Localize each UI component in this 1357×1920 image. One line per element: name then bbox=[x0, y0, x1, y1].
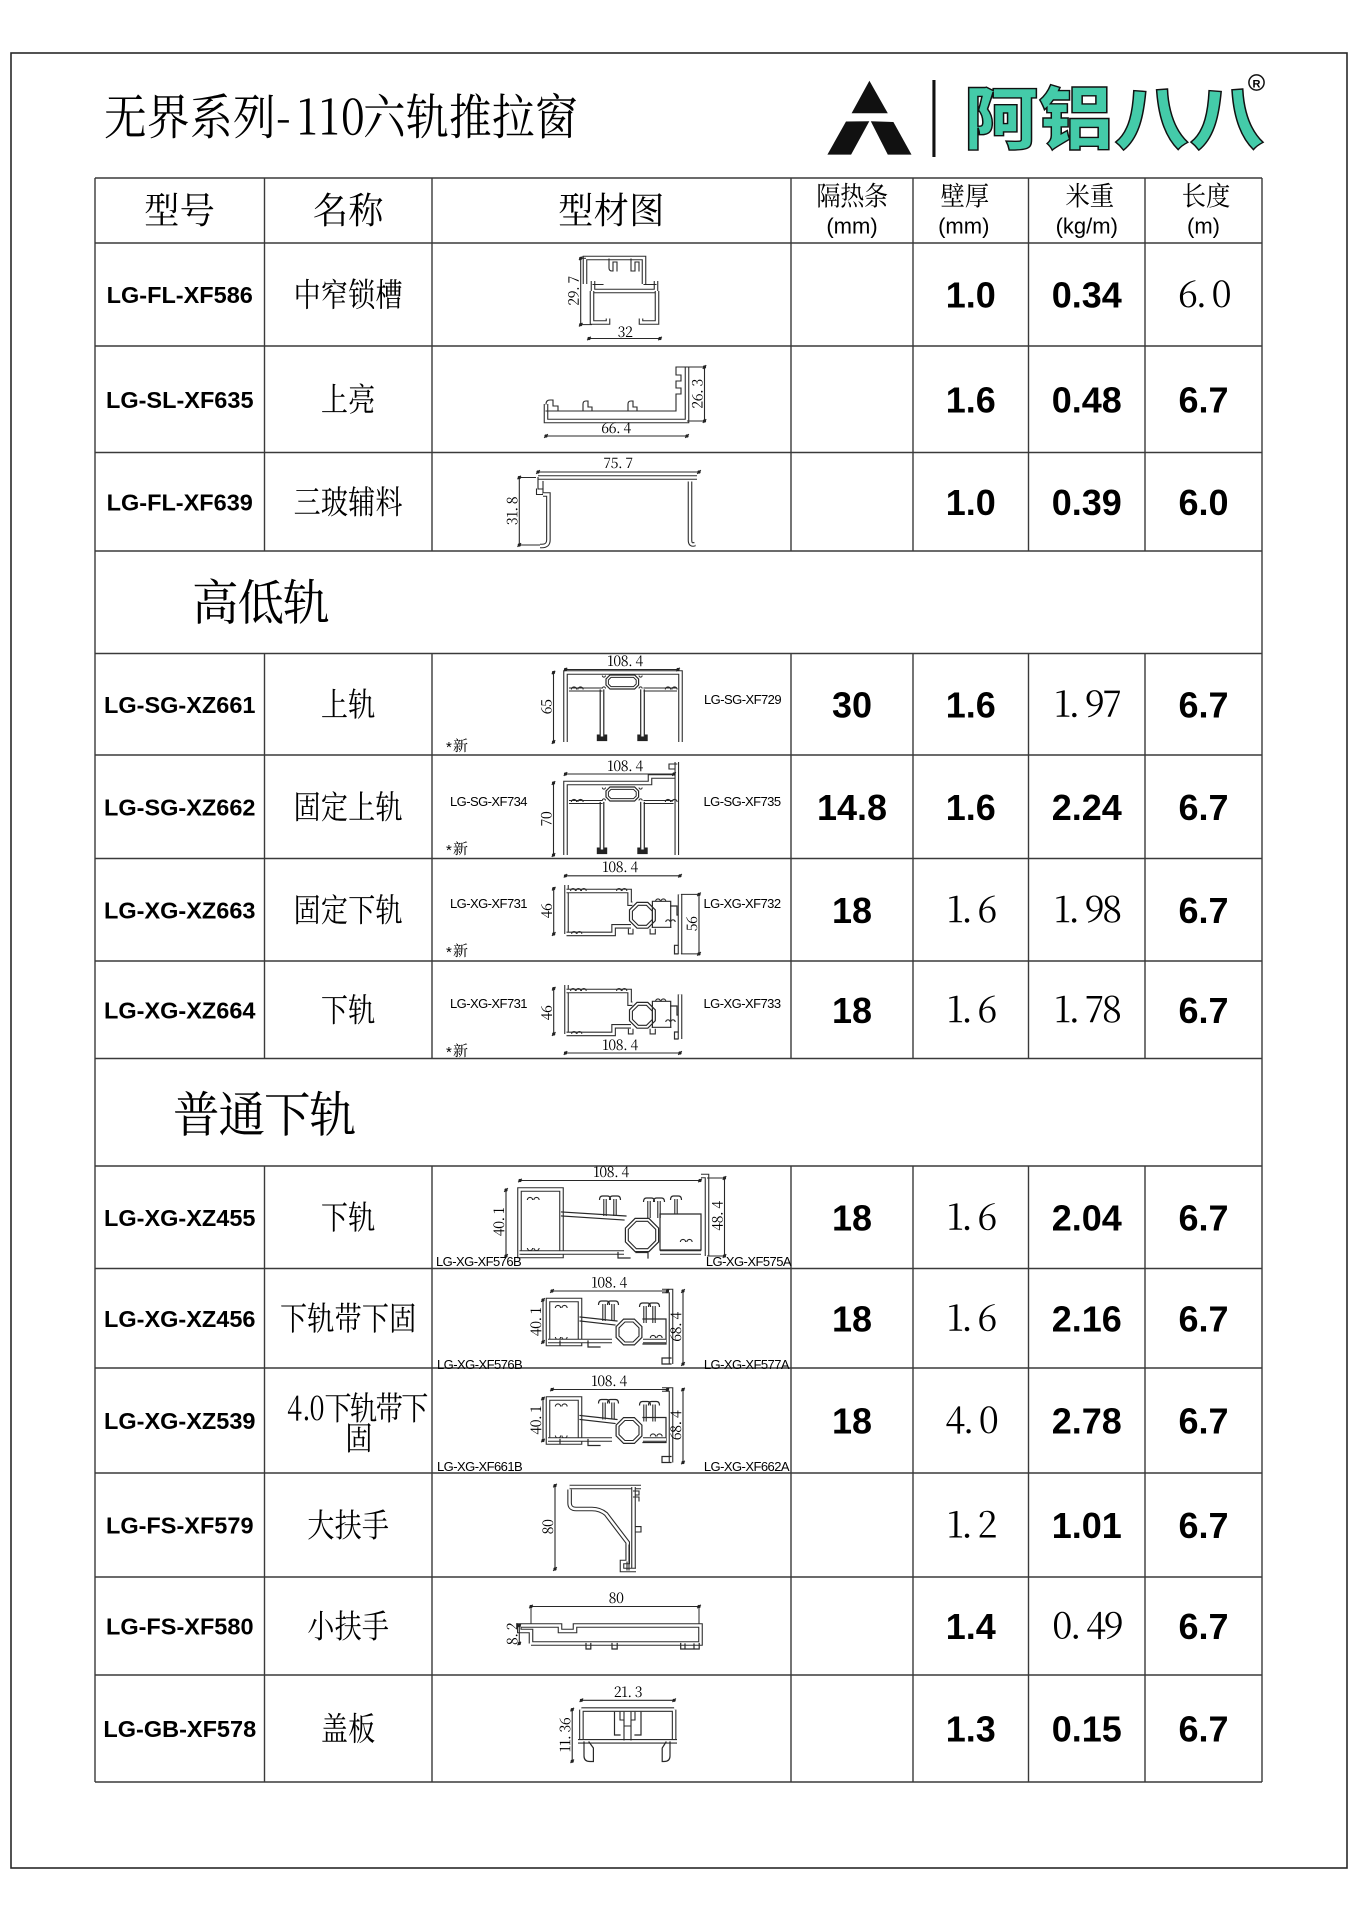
svg-text:LG-XG-XF662A: LG-XG-XF662A bbox=[704, 1459, 790, 1474]
svg-text:LG-SG-XF734: LG-SG-XF734 bbox=[450, 794, 527, 809]
svg-text:1.0: 1.0 bbox=[946, 482, 996, 523]
svg-text:6.7: 6.7 bbox=[1178, 1606, 1228, 1647]
svg-text:LG-XG-XF732: LG-XG-XF732 bbox=[704, 896, 781, 911]
svg-text:LG-XG-XZ455: LG-XG-XZ455 bbox=[104, 1205, 255, 1231]
svg-text:6.7: 6.7 bbox=[1178, 1298, 1228, 1339]
svg-text:LG-XG-XF575A: LG-XG-XF575A bbox=[706, 1254, 792, 1269]
svg-text:2.04: 2.04 bbox=[1052, 1197, 1122, 1238]
svg-text:LG-XG-XZ539: LG-XG-XZ539 bbox=[104, 1408, 255, 1434]
svg-text:LG-SG-XZ662: LG-SG-XZ662 bbox=[104, 794, 255, 820]
svg-text:18: 18 bbox=[832, 990, 872, 1031]
svg-text:1.01: 1.01 bbox=[1052, 1505, 1122, 1546]
svg-text:2.78: 2.78 bbox=[1052, 1401, 1122, 1442]
svg-text:*: * bbox=[446, 944, 452, 961]
svg-text:LG-FS-XF579: LG-FS-XF579 bbox=[106, 1513, 254, 1539]
svg-text:6.7: 6.7 bbox=[1178, 379, 1228, 420]
svg-text:LG-XG-XF577A: LG-XG-XF577A bbox=[704, 1357, 790, 1372]
svg-text:LG-GB-XF578: LG-GB-XF578 bbox=[103, 1716, 256, 1742]
svg-text:LG-XG-XF731: LG-XG-XF731 bbox=[450, 896, 527, 911]
svg-text:LG-SG-XF729: LG-SG-XF729 bbox=[704, 692, 781, 707]
svg-text:6.7: 6.7 bbox=[1178, 787, 1228, 828]
svg-text:6.7: 6.7 bbox=[1178, 990, 1228, 1031]
svg-text:2.24: 2.24 bbox=[1052, 787, 1122, 828]
svg-text:6.7: 6.7 bbox=[1178, 1197, 1228, 1238]
svg-text:1.4: 1.4 bbox=[946, 1606, 996, 1647]
svg-text:18: 18 bbox=[832, 1401, 872, 1442]
svg-text:0.48: 0.48 bbox=[1052, 379, 1122, 420]
svg-text:LG-XG-XZ664: LG-XG-XZ664 bbox=[104, 997, 255, 1023]
svg-text:LG-SG-XZ661: LG-SG-XZ661 bbox=[104, 692, 255, 718]
svg-text:LG-FS-XF580: LG-FS-XF580 bbox=[106, 1614, 254, 1640]
svg-text:(kg/m): (kg/m) bbox=[1056, 214, 1118, 239]
svg-text:1.6: 1.6 bbox=[946, 379, 996, 420]
svg-text:6.7: 6.7 bbox=[1178, 1401, 1228, 1442]
svg-text:*: * bbox=[446, 1044, 452, 1061]
svg-text:LG-XG-XF733: LG-XG-XF733 bbox=[704, 996, 781, 1011]
svg-text:LG-XG-XF661B: LG-XG-XF661B bbox=[437, 1459, 522, 1474]
svg-text:LG-XG-XZ663: LG-XG-XZ663 bbox=[104, 897, 255, 923]
svg-text:LG-SL-XF635: LG-SL-XF635 bbox=[106, 387, 254, 413]
svg-text:0.15: 0.15 bbox=[1052, 1709, 1122, 1750]
svg-text:*: * bbox=[446, 842, 452, 859]
svg-text:LG-XG-XF576B: LG-XG-XF576B bbox=[436, 1254, 521, 1269]
svg-text:(mm): (mm) bbox=[938, 214, 989, 239]
svg-text:LG-FL-XF639: LG-FL-XF639 bbox=[107, 489, 253, 515]
svg-text:30: 30 bbox=[832, 684, 872, 725]
svg-text:LG-FL-XF586: LG-FL-XF586 bbox=[107, 282, 253, 308]
svg-text:6.0: 6.0 bbox=[1178, 482, 1228, 523]
svg-text:1.6: 1.6 bbox=[946, 684, 996, 725]
svg-text:18: 18 bbox=[832, 1298, 872, 1339]
svg-text:0.39: 0.39 bbox=[1052, 482, 1122, 523]
svg-text:LG-SG-XF735: LG-SG-XF735 bbox=[704, 794, 781, 809]
svg-text:6.7: 6.7 bbox=[1178, 1709, 1228, 1750]
svg-text:2.16: 2.16 bbox=[1052, 1298, 1122, 1339]
svg-text:1.0: 1.0 bbox=[946, 275, 996, 316]
svg-text:*: * bbox=[446, 739, 452, 756]
svg-text:6.7: 6.7 bbox=[1178, 1505, 1228, 1546]
svg-text:(m): (m) bbox=[1187, 214, 1220, 239]
svg-text:(mm): (mm) bbox=[826, 214, 877, 239]
svg-text:LG-XG-XF731: LG-XG-XF731 bbox=[450, 996, 527, 1011]
svg-text:6.7: 6.7 bbox=[1178, 890, 1228, 931]
svg-text:1.3: 1.3 bbox=[946, 1709, 996, 1750]
svg-text:LG-XG-XZ456: LG-XG-XZ456 bbox=[104, 1306, 255, 1332]
svg-text:6.7: 6.7 bbox=[1178, 684, 1228, 725]
svg-text:0.34: 0.34 bbox=[1052, 275, 1122, 316]
svg-text:18: 18 bbox=[832, 1197, 872, 1238]
svg-text:LG-XG-XF576B: LG-XG-XF576B bbox=[437, 1357, 522, 1372]
svg-text:18: 18 bbox=[832, 890, 872, 931]
svg-text:14.8: 14.8 bbox=[817, 787, 887, 828]
svg-text:1.6: 1.6 bbox=[946, 787, 996, 828]
svg-text:R: R bbox=[1253, 79, 1261, 91]
